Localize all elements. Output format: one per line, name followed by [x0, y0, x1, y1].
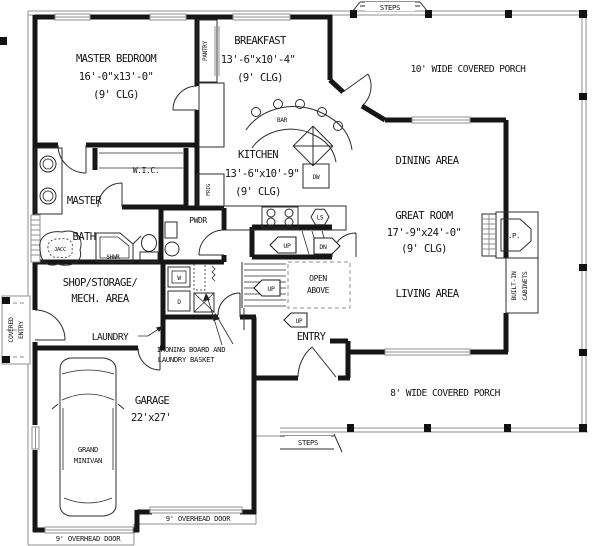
- built-in-cabinets: BUILT-IN CABINETS: [506, 258, 538, 313]
- shop-label-1: SHOP/STORAGE/: [63, 277, 138, 289]
- column: [579, 349, 587, 356]
- porch-top-label: 10' WIDE COVERED PORCH: [411, 64, 527, 75]
- breakfast-clg: (9' CLG): [237, 72, 283, 84]
- column: [2, 297, 10, 304]
- garage-dims: 22'x27': [131, 412, 171, 424]
- wic-door: [98, 183, 122, 207]
- shwr-label: SHWR: [106, 254, 120, 261]
- front-door: [298, 347, 336, 377]
- ironing-hook: [212, 266, 215, 281]
- entry-up-arrow: UP: [284, 313, 307, 327]
- lazy-susan: LS: [311, 209, 329, 225]
- van-label-1: GRAND: [78, 445, 98, 454]
- steps-bottom-label: STEPS: [298, 438, 318, 447]
- column: [504, 424, 511, 432]
- ironing-label-1: IRONING BOARD AND: [157, 345, 225, 354]
- living-label: LIVING AREA: [396, 288, 460, 300]
- toilet: [140, 235, 158, 263]
- van-label-2: MINIVAN: [74, 456, 102, 465]
- kitchen-name: KITCHEN: [238, 149, 278, 161]
- column: [579, 93, 587, 100]
- laundry-label: LAUNDRY: [92, 332, 129, 343]
- master-bedroom-dims: 16'-0"x13'-0": [79, 71, 153, 83]
- master-bedroom-name: MASTER BEDROOM: [76, 53, 156, 65]
- bath-window-hatch: [31, 215, 40, 262]
- column: [424, 424, 431, 432]
- entry-label: ENTRY: [297, 331, 327, 343]
- open-above-label-2: ABOVE: [307, 286, 330, 295]
- window: [150, 14, 186, 20]
- powder-label: PWDR: [189, 216, 207, 225]
- dryer: D: [168, 291, 190, 311]
- bar-stool: [252, 108, 261, 117]
- column: [579, 10, 587, 18]
- laundry-door: [218, 293, 240, 317]
- column: [579, 264, 587, 271]
- bar-label: BAR: [277, 117, 288, 124]
- window: [233, 14, 290, 20]
- built-in-label-2: CABINETS: [521, 271, 529, 300]
- column: [2, 356, 10, 363]
- porch-bottom-label: 8' WIDE COVERED PORCH: [390, 388, 500, 399]
- master-bedroom-door: [173, 86, 197, 110]
- covered-entry-label-2: ENTRY: [17, 321, 25, 339]
- room-labels: MASTER BEDROOM 16'-0"x13'-0" (9' CLG) BR…: [56, 35, 526, 543]
- master-bedroom-clg: (9' CLG): [93, 89, 139, 101]
- ironing-board: [194, 264, 205, 290]
- wic-label: W.I.C.: [133, 166, 160, 175]
- column: [579, 424, 587, 432]
- overhead-door-left-label: 9' OVERHEAD DOOR: [56, 534, 121, 543]
- master-bath-label-2: BATH: [73, 231, 96, 243]
- jacc-label: JACC: [54, 247, 66, 253]
- overhead-door-panel: [150, 507, 242, 513]
- shop-label-2: MECH. AREA: [71, 293, 129, 305]
- washer-label: W: [177, 275, 181, 282]
- bar-stool: [274, 100, 283, 109]
- dining-label: DINING AREA: [396, 155, 460, 167]
- vanity: [35, 148, 62, 214]
- steps-top-label: STEPS: [380, 3, 400, 12]
- dishwasher: DW: [303, 164, 329, 188]
- window: [55, 14, 90, 20]
- breakfast-porch-door: [343, 74, 371, 106]
- up-arrow: UP: [270, 237, 296, 253]
- breakfast-name: BREAKFAST: [234, 35, 287, 47]
- steps-bottom: STEPS: [280, 434, 342, 452]
- floor-plan-canvas: STEPS STEPS COVERED ENTRY: [0, 0, 600, 546]
- overhead-door-panel: [45, 527, 133, 533]
- powder-door: [199, 230, 224, 255]
- pantry-closet: PANTRY: [197, 20, 219, 82]
- covered-entry-label-1: COVERED: [7, 317, 15, 343]
- built-in-label-1: BUILT-IN: [510, 271, 518, 300]
- svg-text:UP: UP: [283, 242, 291, 250]
- open-above: OPEN ABOVE: [288, 262, 350, 308]
- svg-text:UP: UP: [296, 318, 303, 325]
- powder-toilet: [165, 222, 179, 256]
- counter: [199, 83, 224, 147]
- stairs-lower-run: UP: [242, 262, 286, 330]
- frig-label: FRIG: [206, 184, 212, 196]
- minivan: GRAND MINIVAN: [52, 358, 124, 516]
- great-room-name: GREAT ROOM: [395, 210, 452, 222]
- column: [505, 10, 512, 18]
- pantry-label: PANTRY: [202, 40, 209, 61]
- window: [385, 349, 470, 355]
- fireplace: F.P.: [482, 212, 538, 258]
- sink: [40, 156, 56, 172]
- dryer-label: D: [177, 299, 181, 306]
- floor-plan: STEPS STEPS COVERED ENTRY: [0, 0, 600, 546]
- open-above-label-1: OPEN: [309, 274, 327, 283]
- pier: [0, 37, 7, 45]
- kitchen-sink: [293, 126, 333, 166]
- sink: [40, 188, 56, 204]
- great-room-dims: 17'-9"x24'-0": [387, 227, 461, 239]
- window: [32, 427, 39, 449]
- column: [425, 10, 432, 18]
- down-arrow: DN: [314, 238, 340, 254]
- great-room-clg: (9' CLG): [401, 243, 447, 255]
- ls-label: LS: [317, 215, 324, 222]
- kitchen-clg: (9' CLG): [235, 186, 281, 198]
- kitchen-dims: 13'-6"x10'-9": [225, 168, 299, 180]
- breakfast-dims: 13'-6"x10'-4": [221, 54, 295, 66]
- laundry-closet: W D: [168, 264, 215, 312]
- covered-entry-door: [35, 310, 65, 340]
- garage-name: GARAGE: [135, 395, 170, 407]
- window: [412, 117, 470, 123]
- hearth: [482, 214, 496, 256]
- dw-label: DW: [313, 174, 320, 181]
- shower: SHWR: [96, 233, 141, 262]
- fp-label: F.P.: [504, 231, 520, 240]
- svg-text:DN: DN: [319, 243, 327, 251]
- column: [347, 424, 354, 432]
- washer: W: [168, 267, 190, 287]
- overhead-door-right-label: 9' OVERHEAD DOOR: [166, 514, 231, 523]
- column: [350, 10, 357, 18]
- master-bath-label-1: MASTER: [67, 195, 103, 207]
- ironing-label-2: LAUNDRY BASKET: [158, 355, 215, 364]
- covered-entry: COVERED ENTRY: [2, 296, 30, 364]
- refrigerator: FRIG: [197, 174, 224, 206]
- stairs-upper-run: UP DN: [270, 231, 340, 254]
- svg-text:UP: UP: [267, 285, 275, 293]
